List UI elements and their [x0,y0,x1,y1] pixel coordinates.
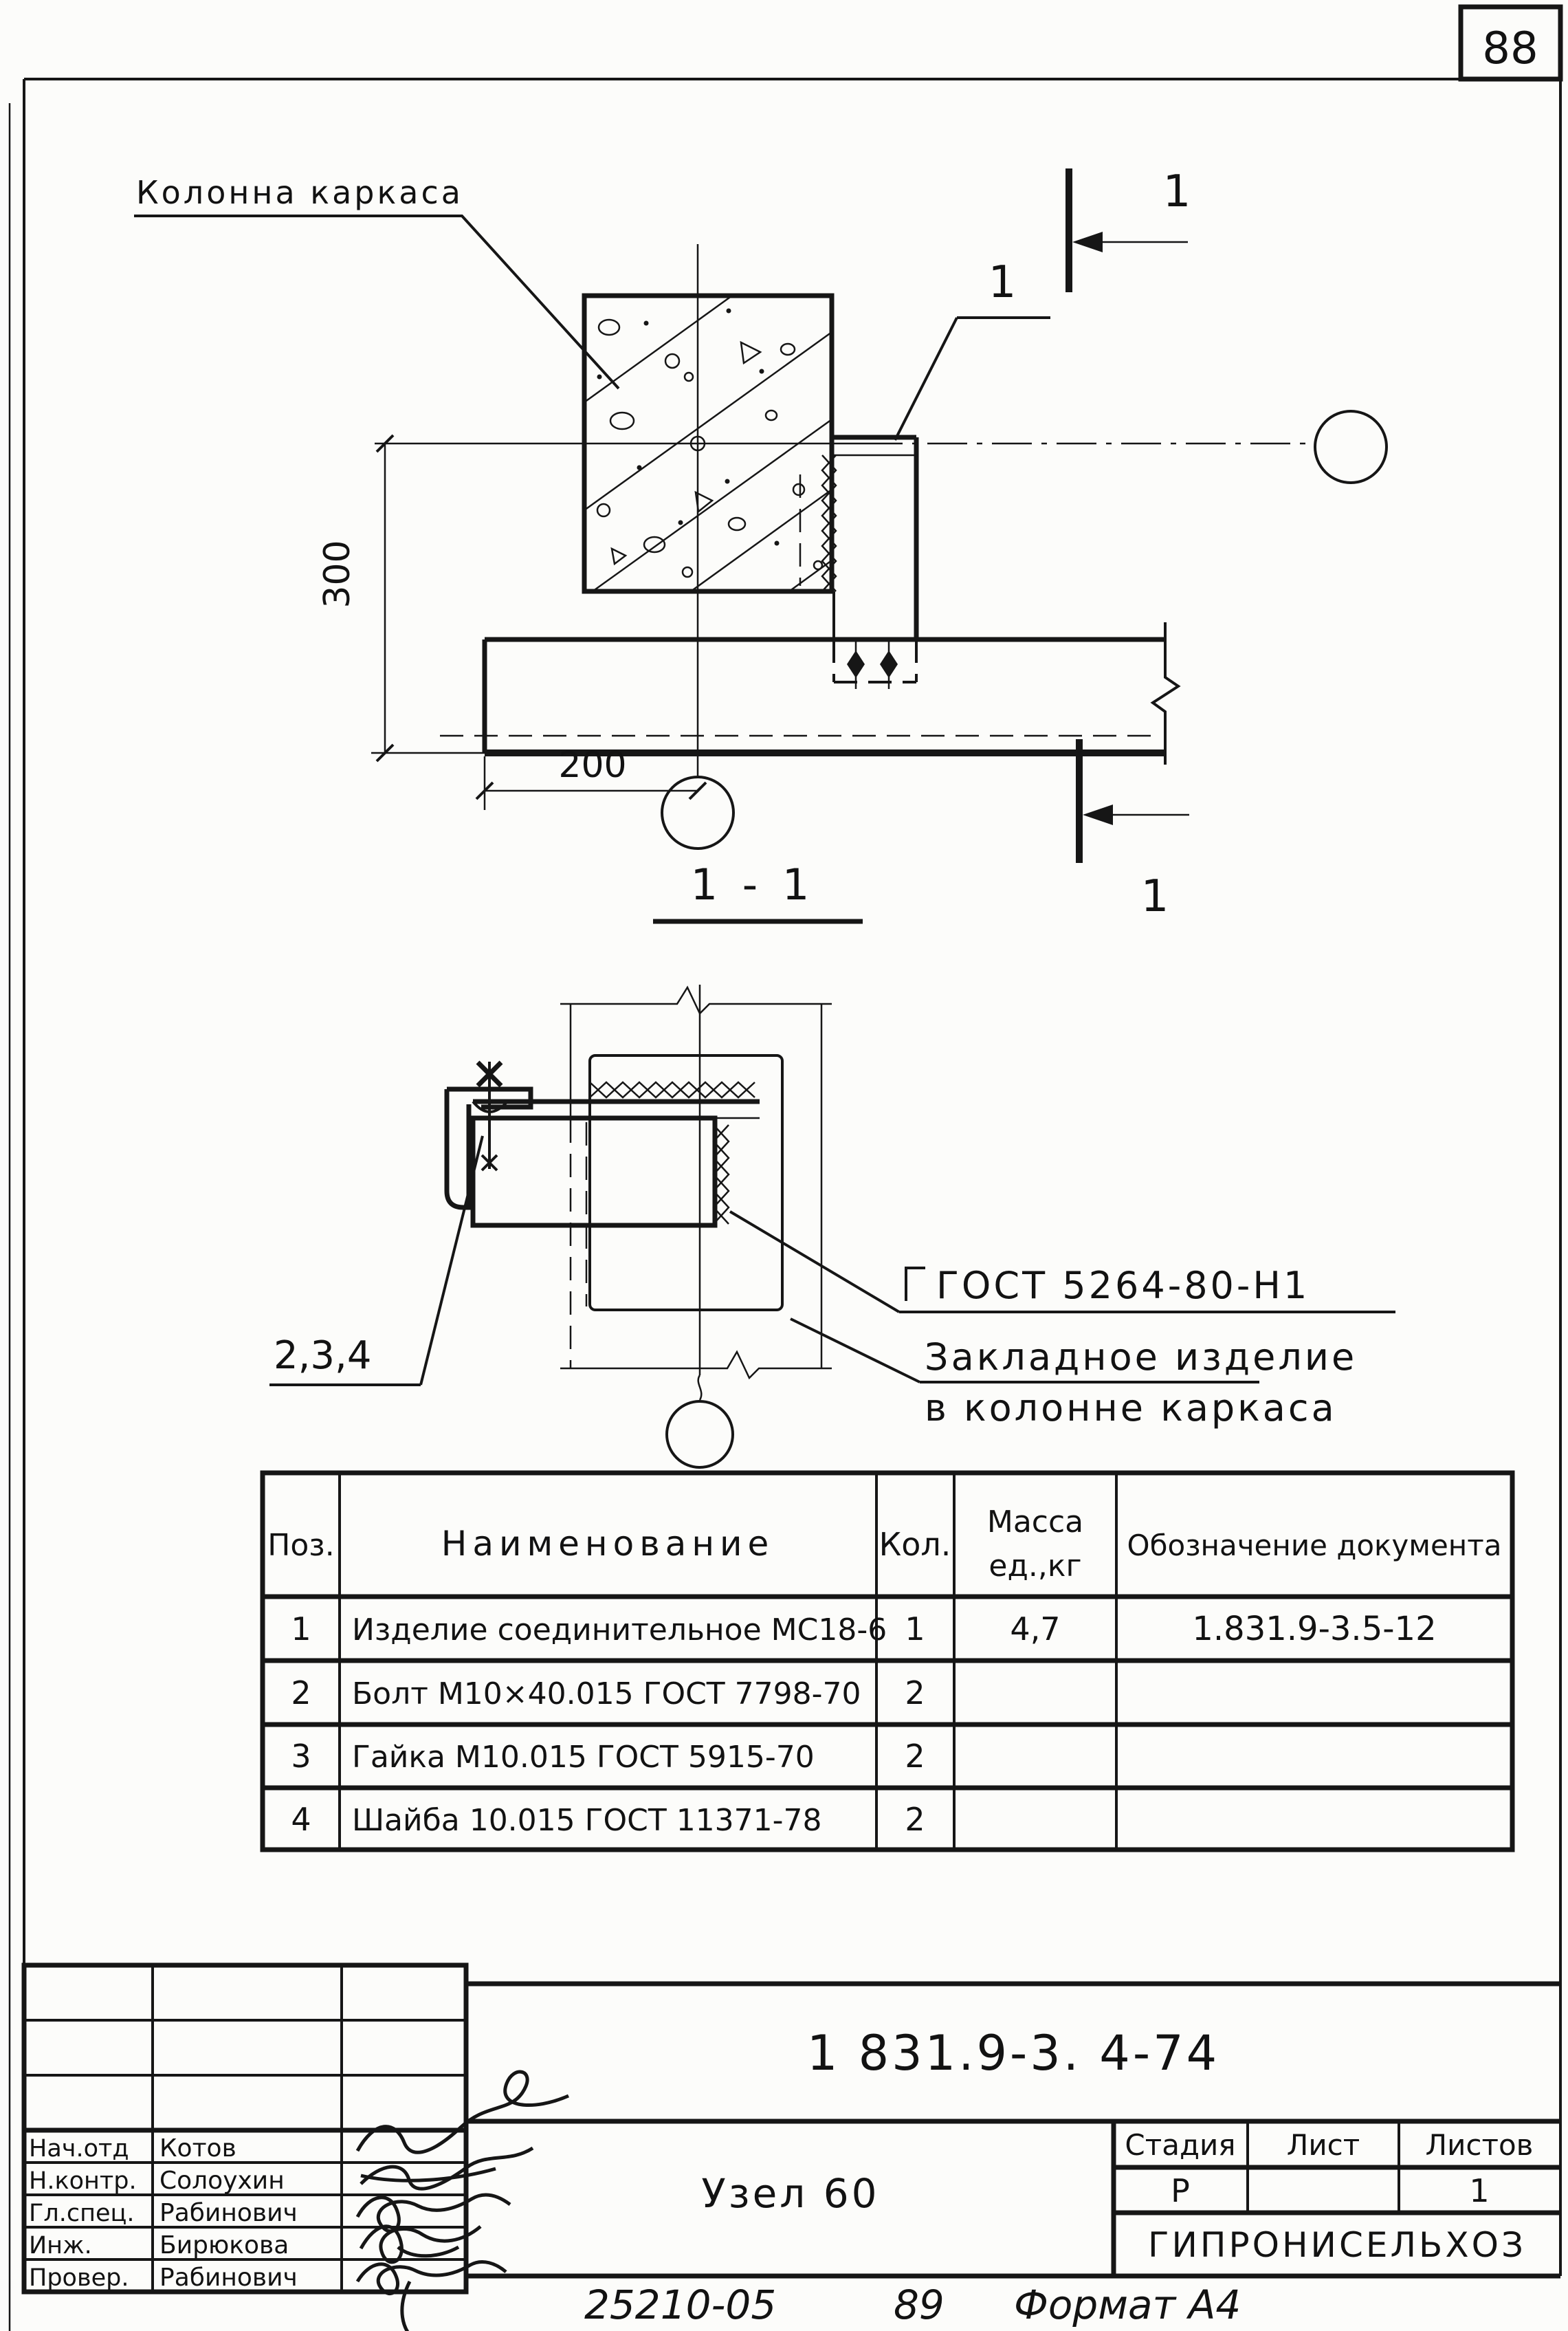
sheets-value: 1 [1469,2172,1489,2209]
page-number: 88 [1482,23,1538,74]
sig-name: Бирюкова [159,2231,289,2259]
section-title: 1 - 1 [691,860,815,910]
sig-role: Провер. [29,2264,129,2292]
grid-bubble-right [1315,411,1387,483]
svg-text:1: 1 [291,1610,311,1648]
embed-note-line1: Закладное изделие [925,1335,1357,1379]
connecting-element-plan [800,437,916,689]
svg-text:Гайка М10.015 ГОСТ 5915-70: Гайка М10.015 ГОСТ 5915-70 [352,1740,815,1775]
table-row: 3 Гайка М10.015 ГОСТ 5915-70 2 [291,1738,925,1775]
grid-bubble-bottom [662,777,733,849]
parts-table: Поз. Наименование Кол. Масса ед.,кг Обоз… [263,1473,1512,1850]
stage-value: Р [1171,2172,1190,2209]
break-line [1153,622,1178,765]
connection-plate-section [473,1082,760,1225]
beam-plan [440,622,1178,765]
column-label: Колонна каркаса [136,174,463,211]
col-qty: Кол. [879,1526,951,1563]
col-mass-2: ед.,кг [989,1548,1081,1584]
col-mass-1: Масса [987,1504,1083,1540]
table-row: 1 Изделие соединительное МС18-6 1 4,7 1.… [291,1610,1436,1648]
format-stamp: 25210-05 89 Формат А4 [584,2281,1241,2328]
items-callout: 2,3,4 [269,1136,483,1385]
section-mark-bottom-label: 1 [1141,871,1169,922]
sig-role: Нач.отд [29,2135,129,2163]
section-mark-bottom: 1 [1079,739,1189,922]
sig-name: Рабинович [159,2199,298,2227]
weld-note-label: ГОСТ 5264-80-Н1 [936,1264,1310,1307]
sig-role: Инж. [29,2232,92,2259]
dim-300: 300 [317,435,485,761]
items-callout-label: 2,3,4 [274,1333,372,1378]
col-name: Наименование [441,1524,775,1564]
page-number-box: 88 [1461,7,1560,79]
svg-text:2: 2 [905,1738,925,1775]
sig-role: Н.контр. [29,2167,137,2195]
drawing-sheet: 88 Колонна каркаса [0,0,1568,2331]
embed-note: Закладное изделие в колонне каркаса [791,1319,1357,1430]
svg-text:4: 4 [291,1801,311,1838]
svg-text:1: 1 [905,1610,925,1648]
col-doc: Обозначение документа [1127,1529,1502,1562]
item1-callout: 1 [895,257,1050,440]
dim-300-label: 300 [317,540,358,608]
table-row: 2 Болт М10×40.015 ГОСТ 7798-70 2 [291,1674,925,1711]
sig-name: Рабинович [159,2264,298,2292]
weld-note: ГОСТ 5264-80-Н1 [730,1212,1395,1312]
organization: ГИПРОНИСЕЛЬХОЗ [1148,2225,1526,2265]
doc-number: 1 831.9-3. 4-74 [807,2025,1219,2081]
stage-label: Стадия [1125,2128,1235,2162]
svg-text:2: 2 [905,1674,925,1711]
svg-text:1.831.9-3.5-12: 1.831.9-3.5-12 [1192,1610,1436,1648]
stamp-year: 89 [894,2281,945,2328]
section-mark-top-label: 1 [1163,166,1191,217]
svg-text:Болт М10×40.015 ГОСТ 7798-70: Болт М10×40.015 ГОСТ 7798-70 [352,1676,861,1711]
embed-note-line2: в колонне каркаса [925,1386,1337,1430]
parts-table-header: Поз. Наименование Кол. Масса ед.,кг Обоз… [267,1504,1501,1584]
svg-text:2: 2 [905,1801,925,1838]
section-mark-top: 1 [1069,166,1191,292]
svg-text:2: 2 [291,1674,311,1711]
sheet-frame [10,79,1560,2331]
section-view: 1 - 1 [269,860,1395,1467]
plan-view: Колонна каркаса [134,166,1387,922]
sig-role: Гл.спец. [29,2200,134,2227]
stamp-code: 25210-05 [584,2281,776,2328]
dim-200-label: 200 [558,745,626,786]
stamp-format: Формат А4 [1014,2281,1241,2328]
item1-callout-label: 1 [989,257,1017,308]
clamp-and-bolt [447,1062,531,1207]
svg-text:Шайба 10.015 ГОСТ 11371-78: Шайба 10.015 ГОСТ 11371-78 [352,1803,822,1838]
sheets-label: Листов [1426,2128,1534,2162]
sig-name: Котов [159,2134,236,2163]
title-block-right: 1 831.9-3. 4-74 Узел 60 Стадия Лист Лист… [466,1965,1560,2292]
sheet-label: Лист [1287,2128,1360,2162]
svg-text:Изделие соединительное МС18-6: Изделие соединительное МС18-6 [352,1612,887,1648]
sig-name: Солоухин [159,2167,285,2195]
table-row: 4 Шайба 10.015 ГОСТ 11371-78 2 [291,1801,925,1838]
grid-bubble-section [667,1401,733,1467]
node-title: Узел 60 [701,2170,879,2217]
col-pos: Поз. [267,1528,334,1563]
svg-text:3: 3 [291,1738,311,1775]
column-label-leader [134,216,619,388]
svg-text:4,7: 4,7 [1010,1610,1060,1648]
